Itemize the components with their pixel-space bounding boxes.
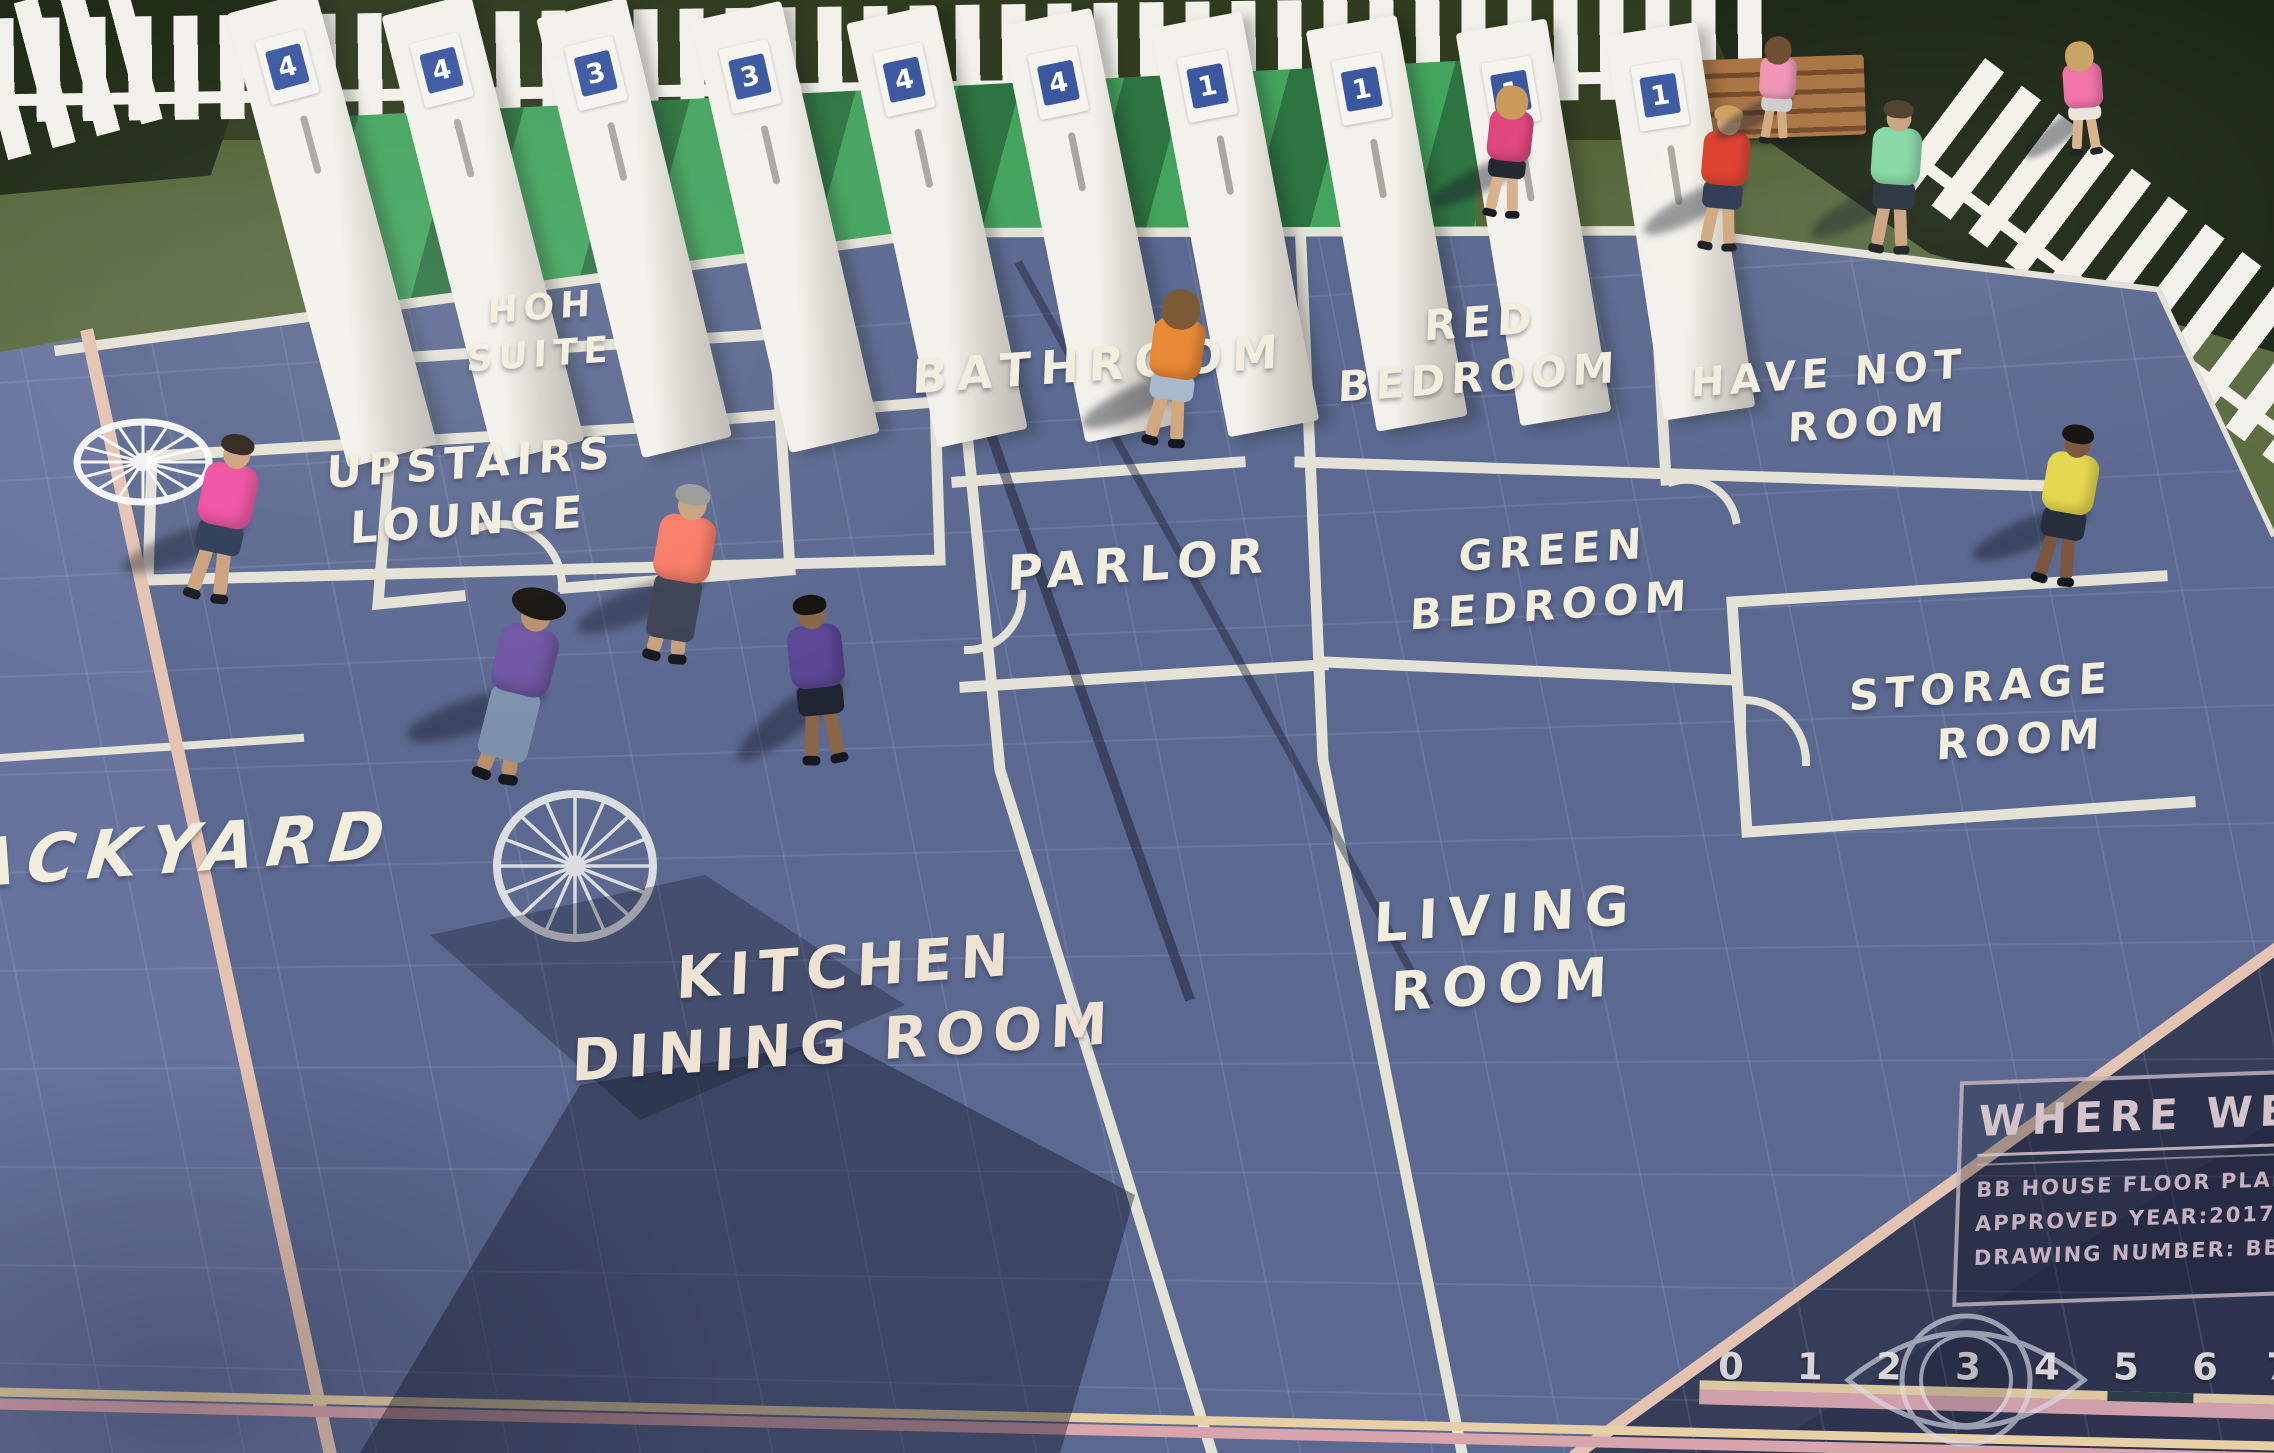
number-card: 3 bbox=[564, 35, 628, 111]
number-card: 1 bbox=[1177, 49, 1238, 123]
number-card: 4 bbox=[255, 29, 320, 106]
room-label-storage-room: STORAGEROOM bbox=[1846, 651, 2114, 779]
title-block-line: DRAWING NUMBER: BB1 bbox=[1973, 1234, 2274, 1270]
number-card: 3 bbox=[718, 39, 781, 114]
number-card: 4 bbox=[409, 32, 474, 108]
houseguest-mint-shirt bbox=[1856, 103, 1933, 259]
number-card: 1 bbox=[1331, 52, 1392, 126]
number-card: 4 bbox=[873, 42, 936, 117]
number-card: 1 bbox=[1630, 59, 1689, 132]
title-block-line: BB HOUSE FLOOR PLAN BLU bbox=[1976, 1166, 2274, 1202]
room-label-have-not-room: HAVE NOTROOM bbox=[1688, 338, 1968, 462]
blueprint-title-block: WHERE WERE BB HOUSE FLOOR PLAN BLU APPRO… bbox=[1952, 1068, 2274, 1307]
room-label-red-bedroom: REDBEDROOM bbox=[1337, 285, 1623, 414]
houseguest-by-fence bbox=[2054, 43, 2115, 166]
room-label-living-room: LIVINGROOM bbox=[1370, 870, 1640, 1030]
tv-screenshot: 4 4 3 3 4 4 1 1 1 1 HOHSUITE UPSTAIRSLOU… bbox=[0, 0, 2274, 1453]
number-card: 4 bbox=[1027, 46, 1089, 121]
title-block-line: APPROVED YEAR:2017 bbox=[1975, 1200, 2274, 1236]
blueprint-scale-ruler: 0 1 2 3 4 5 6 7 bbox=[1693, 1310, 2274, 1436]
houseguest-near-bench bbox=[1750, 39, 1805, 153]
room-label-green-bedroom: GREENBEDROOM bbox=[1409, 513, 1695, 642]
room-label-upstairs-lounge: UPSTAIRSLOUNGE bbox=[323, 424, 617, 559]
wagon-wheel-left bbox=[77, 422, 209, 502]
title-block-heading: WHERE WERE bbox=[1978, 1085, 2274, 1146]
room-label-hoh-suite: HOHSUITE bbox=[466, 280, 617, 384]
